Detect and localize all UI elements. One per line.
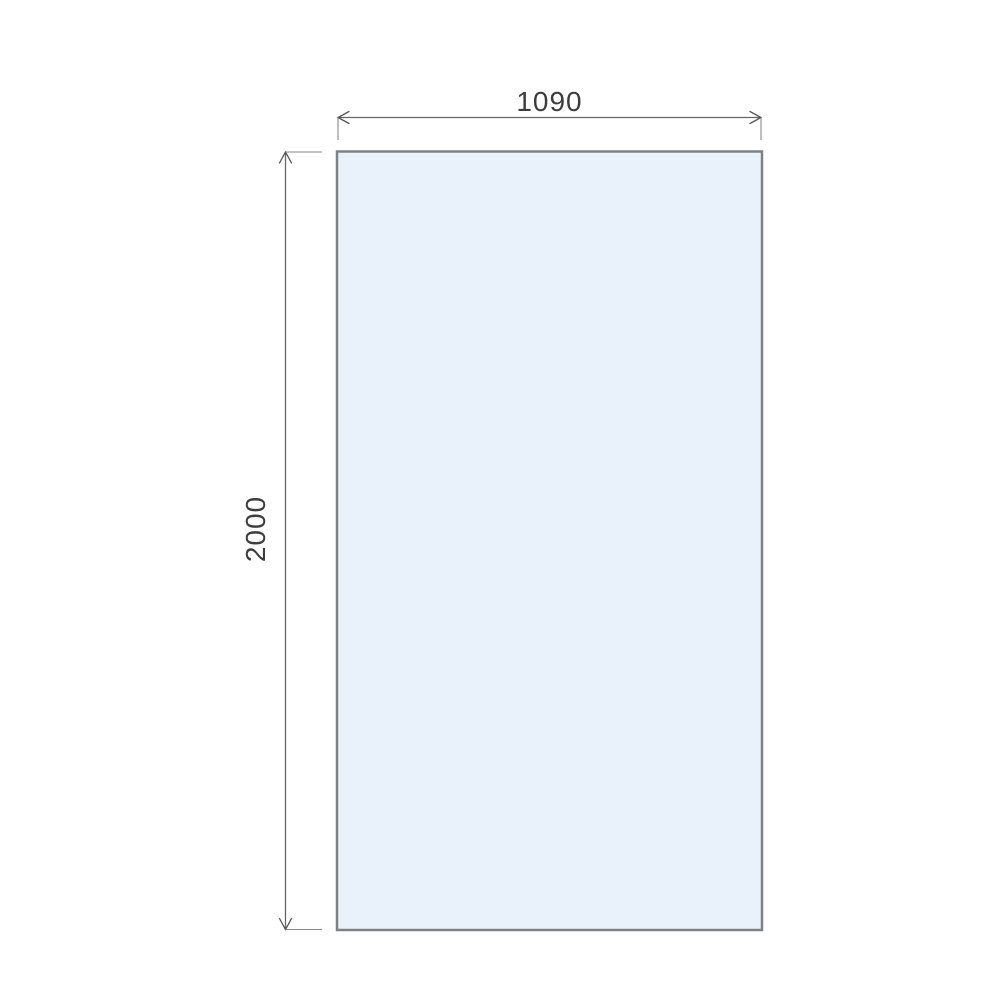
panel-rect [337,152,762,931]
height-dimension-label: 2000 [240,496,271,562]
width-dimension-label: 1090 [516,86,582,117]
drawing-canvas: 1090 2000 [0,0,1005,1005]
height-dimension: 2000 [240,152,322,930]
width-dimension: 1090 [338,86,761,140]
panel-dimension-drawing: 1090 2000 [0,0,1005,1005]
